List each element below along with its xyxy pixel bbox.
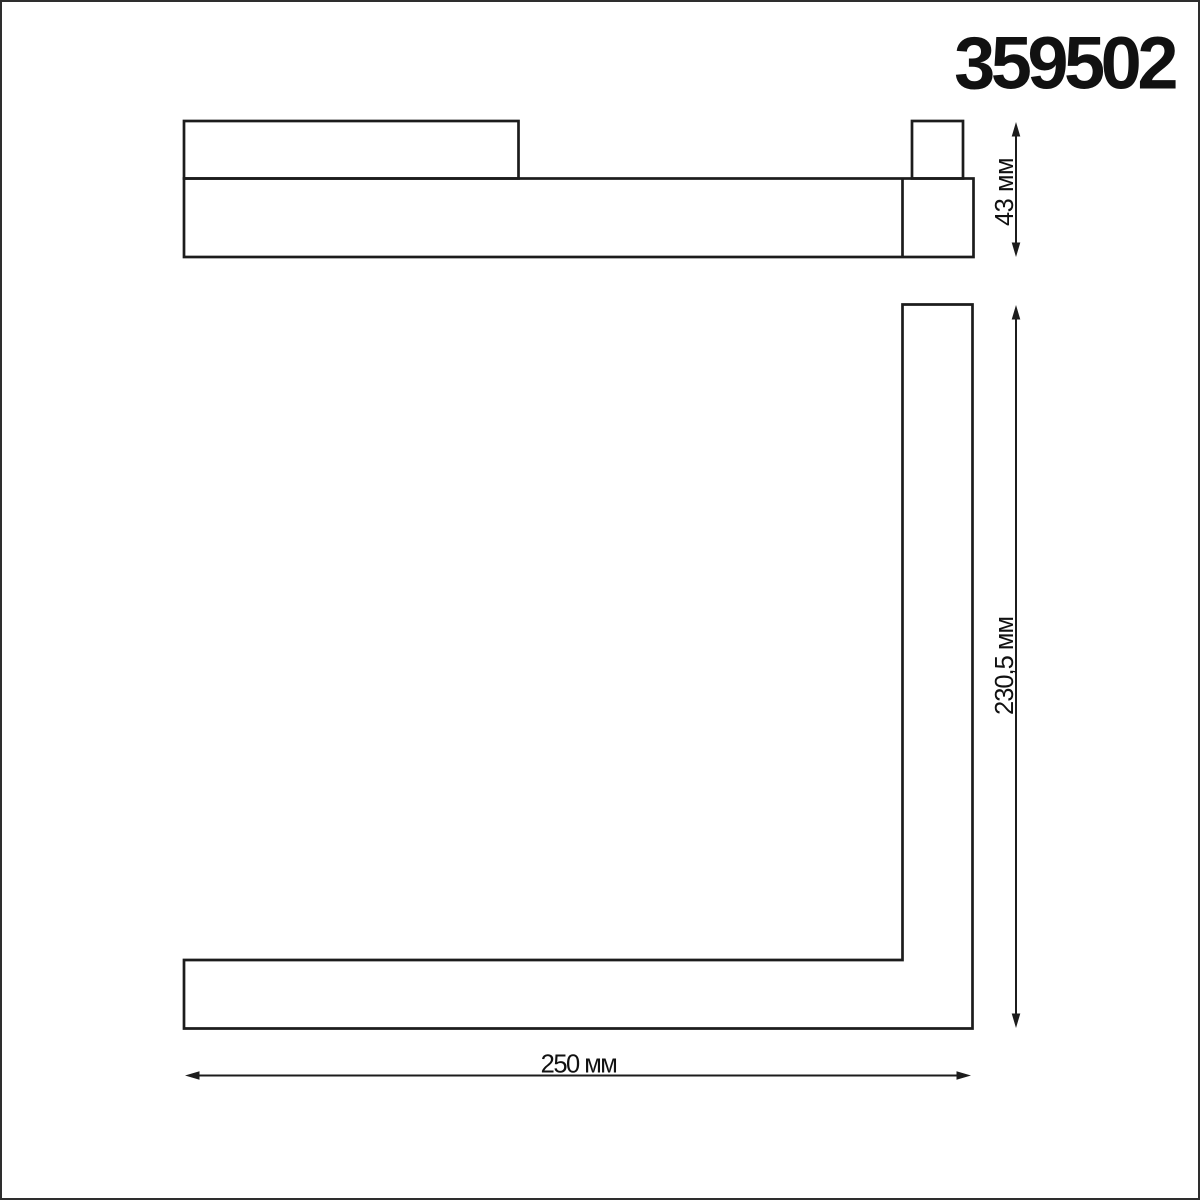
svg-text:230,5 мм: 230,5 мм: [991, 617, 1019, 715]
svg-text:359502: 359502: [954, 22, 1176, 105]
svg-text:43 мм: 43 мм: [991, 158, 1019, 226]
svg-text:250 мм: 250 мм: [541, 1051, 617, 1079]
